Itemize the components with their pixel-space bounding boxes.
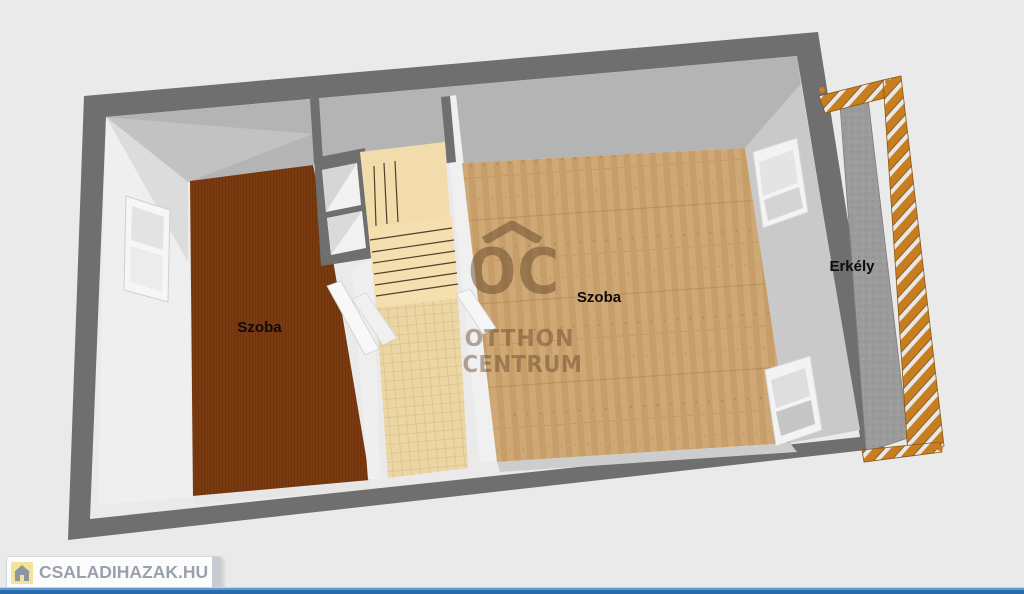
label-room-left: Szoba <box>222 319 297 336</box>
left-window <box>124 196 170 302</box>
hallway-floor <box>376 298 468 478</box>
floor-plan-screenshot: Szoba Szoba Erkély OC OTTHON CENTRUM CSA… <box>0 0 1024 594</box>
stair-winders <box>360 142 450 228</box>
logo-tab <box>212 557 221 588</box>
railing-post-bottom <box>937 445 943 451</box>
watermark-initials: OC <box>466 236 562 308</box>
watermark-line2: CENTRUM <box>462 352 565 378</box>
house-icon <box>11 562 33 584</box>
site-logo: CSALADIHAZAK.HU <box>6 556 222 589</box>
label-balcony: Erkély <box>808 258 896 275</box>
label-room-right: Szoba <box>560 289 638 306</box>
bottom-accent-bar <box>0 587 1024 594</box>
railing-post-top <box>819 87 825 93</box>
railing-post-corner <box>885 79 891 85</box>
site-logo-text: CSALADIHAZAK.HU <box>39 562 208 583</box>
watermark-line1: OTTHON <box>465 326 564 352</box>
